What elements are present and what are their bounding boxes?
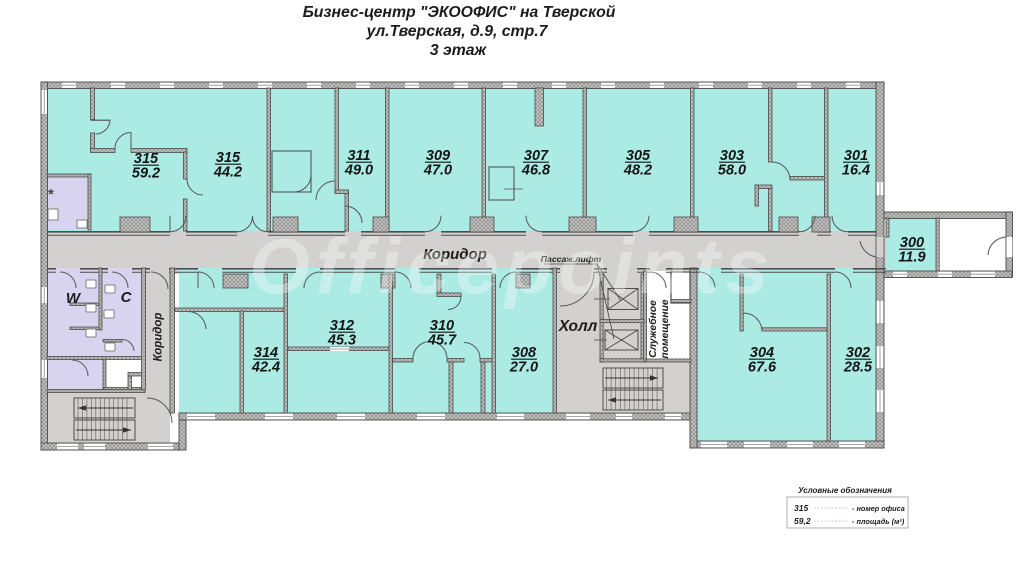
svg-text:- площадь (м²): - площадь (м²) xyxy=(852,517,905,526)
svg-text:Коридор: Коридор xyxy=(153,313,165,362)
svg-text:46.8: 46.8 xyxy=(521,163,551,179)
svg-text:28.5: 28.5 xyxy=(843,360,873,376)
svg-text:49.0: 49.0 xyxy=(344,163,373,179)
svg-text:ул.Тверская, д.9, стр.7: ул.Тверская, д.9, стр.7 xyxy=(366,23,549,40)
svg-text:- номер офиса: - номер офиса xyxy=(852,504,905,513)
svg-text:Officepoints: Officepoints xyxy=(249,222,775,310)
svg-text:67.6: 67.6 xyxy=(748,360,777,376)
svg-text:59.2: 59.2 xyxy=(132,166,160,182)
svg-text:48.2: 48.2 xyxy=(623,163,652,179)
svg-text:W: W xyxy=(66,290,82,307)
svg-text:315: 315 xyxy=(794,503,808,513)
svg-text:58.0: 58.0 xyxy=(718,163,746,179)
svg-text:16.4: 16.4 xyxy=(842,163,870,179)
svg-text:27.0: 27.0 xyxy=(509,360,538,376)
svg-text:Условные обозначения: Условные обозначения xyxy=(798,486,892,495)
svg-text:Холл: Холл xyxy=(558,318,598,335)
svg-text:45.7: 45.7 xyxy=(427,333,457,349)
svg-text:C: C xyxy=(121,289,133,306)
svg-text:47.0: 47.0 xyxy=(423,163,452,179)
svg-text:45.3: 45.3 xyxy=(327,333,356,349)
svg-text:*: * xyxy=(48,186,54,203)
svg-text:11.9: 11.9 xyxy=(898,250,925,266)
svg-text:3 этаж: 3 этаж xyxy=(430,42,488,59)
svg-text:Бизнес-центр "ЭКООФИС" на Твер: Бизнес-центр "ЭКООФИС" на Тверской xyxy=(303,4,616,21)
svg-text:44.2: 44.2 xyxy=(213,165,242,181)
svg-text:59,2: 59,2 xyxy=(794,516,811,526)
svg-text:42.4: 42.4 xyxy=(251,360,280,376)
